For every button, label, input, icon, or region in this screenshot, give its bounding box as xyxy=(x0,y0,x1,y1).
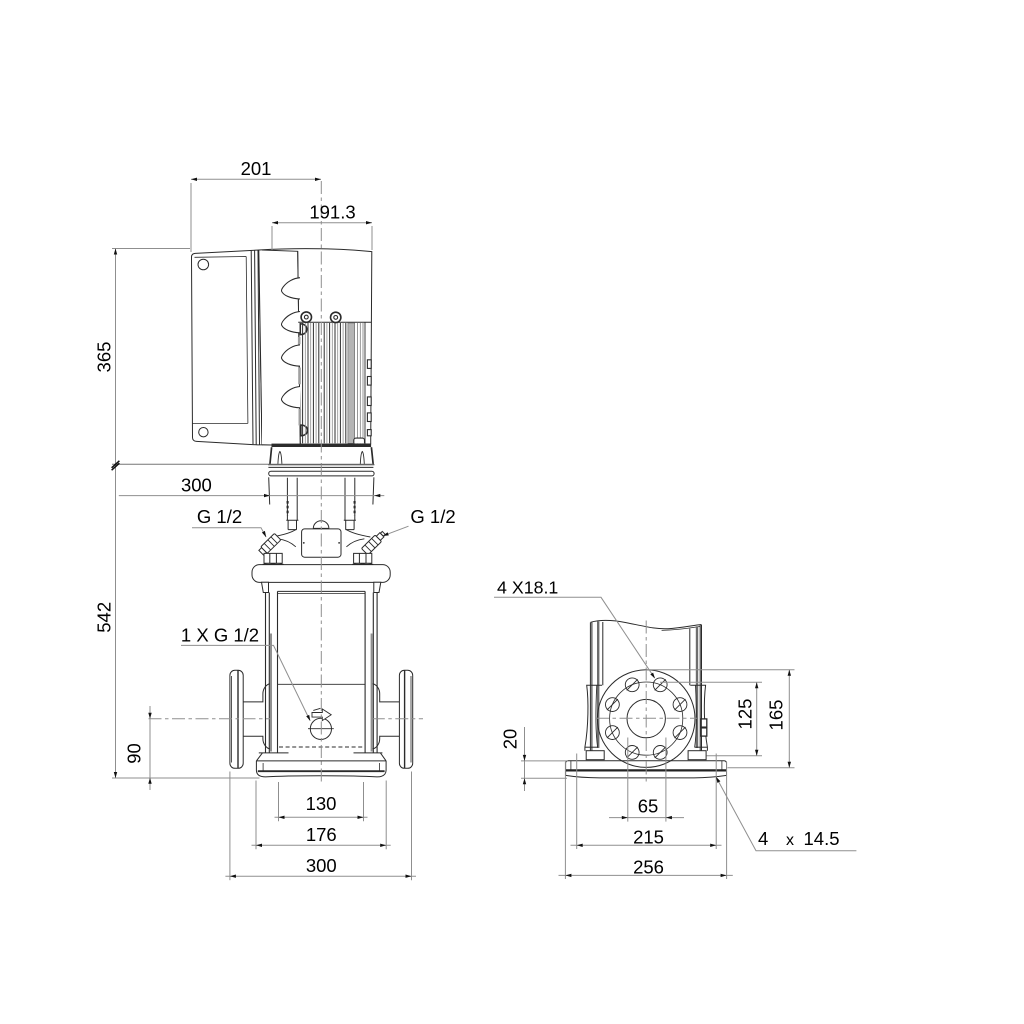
svg-text:4 X18.1: 4 X18.1 xyxy=(497,578,558,598)
svg-text:300: 300 xyxy=(306,855,337,876)
svg-text:300: 300 xyxy=(181,474,212,495)
svg-text:201: 201 xyxy=(241,158,272,179)
svg-text:x: x xyxy=(786,832,794,849)
svg-text:125: 125 xyxy=(735,699,756,730)
svg-text:14.5: 14.5 xyxy=(804,828,840,849)
svg-text:G 1/2: G 1/2 xyxy=(197,506,242,527)
svg-text:1 X G 1/2: 1 X G 1/2 xyxy=(181,625,259,646)
svg-text:20: 20 xyxy=(500,729,521,750)
svg-text:G 1/2: G 1/2 xyxy=(410,506,455,527)
svg-text:542: 542 xyxy=(93,602,114,633)
svg-text:176: 176 xyxy=(306,824,337,845)
svg-text:65: 65 xyxy=(638,796,659,817)
svg-text:130: 130 xyxy=(306,793,337,814)
svg-text:256: 256 xyxy=(633,856,664,877)
svg-text:365: 365 xyxy=(93,342,114,373)
svg-text:191.3: 191.3 xyxy=(309,201,355,222)
svg-text:90: 90 xyxy=(124,743,145,764)
svg-text:215: 215 xyxy=(633,827,664,848)
svg-text:4: 4 xyxy=(758,828,768,849)
svg-text:165: 165 xyxy=(766,700,787,731)
